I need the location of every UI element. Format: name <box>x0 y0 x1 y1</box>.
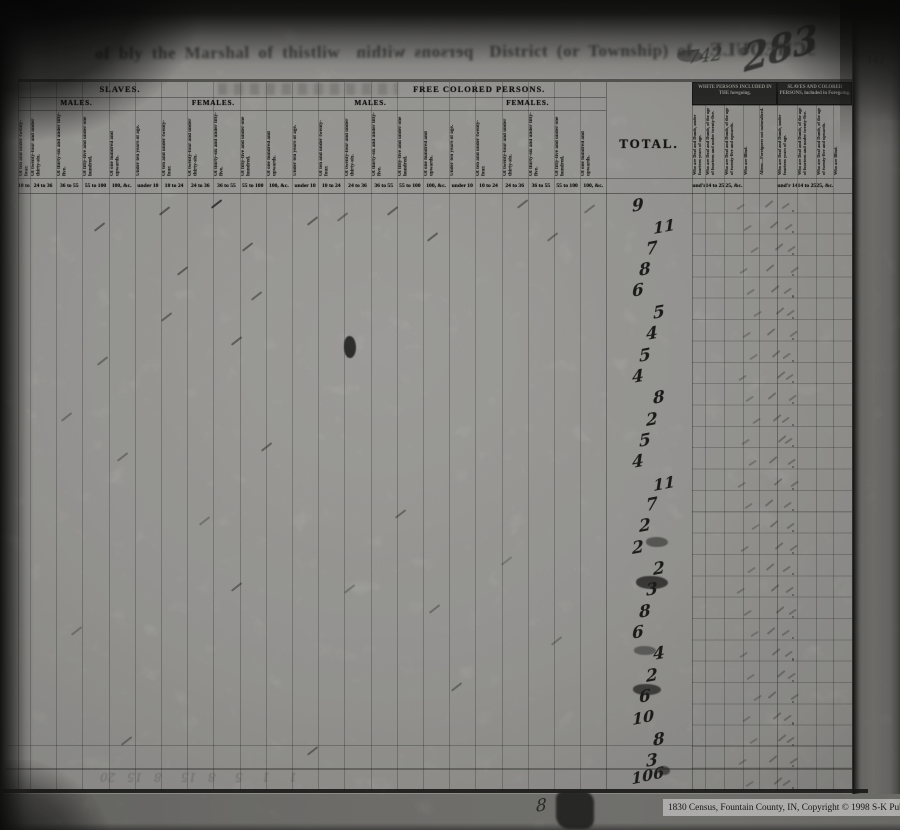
right-bleed-tick <box>782 352 790 358</box>
bottom-bleed-number: 5 <box>235 770 243 784</box>
bottom-bleed-number: 8 <box>208 770 216 784</box>
column-header-vertical-white-deaf: Who are Deaf and Dumb, of the age of twe… <box>725 106 742 177</box>
column-age-label-fc-males: 10 to 24 <box>318 179 344 193</box>
right-row-dot <box>792 637 794 639</box>
table-column-line <box>318 82 319 791</box>
table-column-line <box>371 82 372 791</box>
right-bleed-tick <box>750 631 758 637</box>
right-bleed-tick <box>778 734 787 742</box>
right-bleed-tick <box>786 309 794 315</box>
total-entry: 5 <box>653 302 665 324</box>
column-age-label-fc-females: 10 to 24 <box>475 179 501 193</box>
bleed-title-segment: SCHEDULE <box>709 39 816 62</box>
table-column-line <box>475 82 476 791</box>
right-bleed-tick <box>768 691 777 699</box>
column-age-label-white-deaf: 14 to 25 <box>705 179 724 193</box>
right-bleed-tick <box>736 588 744 594</box>
column-age-label-colored-deaf: 14 to 25 <box>797 179 816 193</box>
table-row-rule <box>692 105 852 106</box>
table-column-line <box>816 82 817 791</box>
column-header-vertical-white-deaf: Who are Deaf and Dumb, under fourteen ye… <box>693 106 704 177</box>
table-column-line <box>449 82 450 791</box>
right-bleed-tick <box>777 371 786 379</box>
handwritten-page-number: 283 <box>743 15 819 82</box>
right-row-dot <box>792 701 794 703</box>
column-header-vertical-fc-females: Of thirty-six and under fifty-five. <box>529 110 553 178</box>
tally-tick <box>307 746 318 755</box>
sex-header-0: MALES. <box>18 97 135 110</box>
right-bleed-tick <box>771 584 780 592</box>
column-header-vertical-slaves-males: Of one hundred and upwards. <box>110 110 134 178</box>
right-bleed-tick <box>743 609 751 615</box>
right-bleed-tick <box>737 481 745 487</box>
column-age-label-white-deaf: 25, &c. <box>724 179 743 193</box>
bottom-bleed-number: 1 <box>262 770 270 784</box>
right-bleed-tick <box>745 396 753 402</box>
right-bleed-tick <box>784 651 792 657</box>
right-bleed-tick <box>766 264 775 272</box>
right-bleed-tick <box>752 417 760 423</box>
right-bleed-tick <box>786 736 794 742</box>
column-age-label-fc-females: under 10 <box>449 179 475 193</box>
table-column-line <box>266 82 267 791</box>
right-bleed-tick <box>789 544 797 550</box>
table-column-line <box>240 82 241 791</box>
total-entry: 5 <box>639 430 651 452</box>
table-column-line <box>743 82 744 791</box>
vignette-right-top <box>840 0 900 150</box>
column-age-label-slaves-females: 10 to 24 <box>161 179 187 193</box>
table-column-line <box>724 82 725 791</box>
column-header-vertical-colored-deaf: Who are Deaf and Dumb, under fourteen ye… <box>778 106 796 177</box>
right-bleed-tick <box>753 310 761 316</box>
total-entry: 8 <box>653 729 665 751</box>
total-entry: 8 <box>653 387 665 409</box>
right-bleed-tick <box>749 737 757 743</box>
right-row-dot <box>792 466 794 468</box>
tally-tick <box>71 626 82 635</box>
right-bleed-tick <box>739 652 747 658</box>
right-row-dot <box>792 210 794 212</box>
total-entry: 8 <box>639 600 651 622</box>
total-entry: 3 <box>646 579 658 601</box>
right-row-dot <box>792 765 794 767</box>
grand-total: 106 <box>631 762 665 788</box>
right-bleed-tick <box>750 246 758 252</box>
column-age-label-slaves-males: 10 to 24 <box>18 179 30 193</box>
tally-tick <box>584 204 595 213</box>
section-header-white-included: WHITE PERSONS INCLUDED IN THE foregoing. <box>692 82 777 105</box>
right-bleed-tick <box>783 715 791 721</box>
right-bleed-tick <box>776 606 785 614</box>
total-entry: 7 <box>646 494 658 516</box>
right-row-dot <box>792 317 794 319</box>
ink-blot <box>633 684 661 695</box>
right-row-dot <box>792 360 794 362</box>
column-header-vertical-fc-males: Of fifty-five and under one hundred. <box>398 110 422 178</box>
sex-header-2: MALES. <box>292 97 449 110</box>
table-column-line <box>56 82 57 791</box>
right-bleed-tick <box>774 478 783 486</box>
right-bleed-tick <box>790 267 798 273</box>
right-bleed-tick <box>775 243 784 251</box>
table-column-line <box>30 82 31 791</box>
total-entry: 6 <box>632 622 644 644</box>
scanned-page: of bly the Marshal of thistliwpersons wi… <box>0 0 900 830</box>
table-column-line <box>692 82 693 791</box>
tally-tick <box>199 516 210 525</box>
column-header-vertical-slaves-females: Of one hundred and upwards. <box>267 110 291 178</box>
tally-tick <box>427 232 438 241</box>
table-column-line <box>554 82 555 791</box>
right-bleed-tick <box>746 673 754 679</box>
table-column-line <box>833 82 834 791</box>
table-column-line <box>187 82 188 791</box>
right-bleed-tick <box>775 542 784 550</box>
table-column-line <box>397 82 398 791</box>
right-bleed-tick <box>768 392 777 400</box>
right-bleed-tick <box>767 627 776 635</box>
right-bleed-tick <box>740 545 748 551</box>
column-age-label-fc-males: under 10 <box>292 179 318 193</box>
right-bleed-tick <box>786 523 794 529</box>
right-row-dot <box>792 488 794 490</box>
table-column-line <box>797 82 798 791</box>
scan-grain <box>0 0 900 830</box>
total-entry: 8 <box>639 259 651 281</box>
column-header-vertical-colored-deaf: Who are Deaf and Dumb, of the age of twe… <box>817 106 832 177</box>
right-bleed-tick <box>785 587 793 593</box>
column-age-label-fc-females: 100, &c. <box>580 179 606 193</box>
tally-tick <box>231 582 242 591</box>
table-column-line <box>528 82 529 791</box>
tally-tick <box>517 199 528 208</box>
column-age-label-slaves-females: 55 to 100 <box>240 179 266 193</box>
tally-tick <box>551 636 562 645</box>
ink-blot <box>634 646 656 655</box>
census-table: TOTAL. SLAVES.FREE COLORED PERSONS.MALES… <box>0 0 900 830</box>
bottom-bleed-number: 20 <box>100 770 116 785</box>
column-age-label-white-deaf: und'r 14 <box>692 179 705 193</box>
column-age-label-fc-females: 55 to 100 <box>554 179 580 193</box>
right-bleed-tick <box>784 437 792 443</box>
column-header-vertical-slaves-males: Of twenty-four and under thirty-six. <box>31 110 55 178</box>
right-bleed-tick <box>738 374 746 380</box>
table-row-rule <box>6 745 852 746</box>
right-bleed-tick <box>772 648 781 656</box>
handwritten-entries-layer: 106 911786545482541172223864261083201581… <box>0 0 900 830</box>
ink-blot <box>344 336 356 358</box>
tally-tick <box>251 291 262 300</box>
right-bleed-tick <box>770 221 779 229</box>
table-column-line <box>82 82 83 791</box>
bottom-bleed-number: 1 <box>289 770 297 784</box>
column-header-vertical-slaves-females: Of twenty-four and under thirty-six. <box>188 110 212 178</box>
right-bleed-tick <box>747 567 755 573</box>
table-column-line <box>344 82 345 791</box>
ink-blot <box>636 576 668 589</box>
table-column-line <box>852 82 853 791</box>
right-row-dot <box>792 445 794 447</box>
right-row-dot <box>792 658 794 660</box>
table-row-rule <box>18 97 606 98</box>
tally-tick <box>161 312 172 321</box>
right-row-dot <box>792 338 794 340</box>
handwritten-folio-number: 742 <box>688 44 723 69</box>
right-bleed-tick <box>781 203 789 209</box>
copyright-strip: 1830 Census, Fountain County, IN, Copyri… <box>663 799 900 816</box>
tally-tick <box>261 442 272 451</box>
total-entry: 2 <box>646 408 658 430</box>
table-column-line <box>213 82 214 791</box>
right-bleed-tick <box>783 288 791 294</box>
tally-tick <box>159 206 170 215</box>
column-header-vertical-white-deaf: Who are Deaf and Dumb, of the age of fou… <box>706 106 723 177</box>
section-header-slaves: SLAVES. <box>18 82 292 97</box>
right-bleed-tick <box>774 776 783 784</box>
total-entry: 5 <box>639 344 651 366</box>
total-entry: 2 <box>632 536 644 558</box>
total-entry: 4 <box>632 366 644 388</box>
sex-header-3: FEMALES. <box>449 97 606 110</box>
column-age-label-fc-males: 55 to 100 <box>397 179 423 193</box>
right-row-dot <box>792 787 794 789</box>
total-column-header: TOTAL. <box>606 110 692 178</box>
total-entry: 9 <box>632 195 644 217</box>
copyright-text: 1830 Census, Fountain County, IN, Copyri… <box>663 803 900 813</box>
right-row-dot <box>792 552 794 554</box>
table-row-rule <box>6 768 852 770</box>
right-row-dot <box>792 509 794 511</box>
right-bleed-tick <box>739 268 747 274</box>
column-age-label-slaves-males: 55 to 100 <box>82 179 108 193</box>
total-entry: 4 <box>632 451 644 473</box>
total-entry: 10 <box>632 706 655 729</box>
column-age-label-fc-males: 100, &c. <box>423 179 449 193</box>
right-bleed-tick <box>787 459 795 465</box>
tally-tick <box>395 509 406 518</box>
paper <box>0 0 900 830</box>
column-header-vertical-slaves-females: Of thirty-six and under fifty-five. <box>214 110 238 178</box>
ink-blot <box>677 50 703 62</box>
column-age-label-colored-deaf: und'r 14 <box>777 179 797 193</box>
tally-tick <box>97 356 108 365</box>
tally-tick <box>177 266 188 275</box>
right-bleed-tick <box>788 608 796 614</box>
column-header-vertical-fc-females: Of fifty-five and under one hundred. <box>555 110 579 178</box>
table-row-rule <box>18 193 852 194</box>
tally-tick <box>337 212 348 221</box>
column-header-vertical-slaves-males: Of fifty-five and under one hundred. <box>83 110 107 178</box>
column-age-label-slaves-females: 36 to 55 <box>213 179 239 193</box>
column-age-label-fc-females: 36 to 55 <box>528 179 554 193</box>
tally-tick <box>344 584 355 593</box>
column-header-vertical-slaves-females: Of fifty-five and under one hundred. <box>241 110 265 178</box>
vignette-corner-tr <box>760 0 900 120</box>
right-bleed-tick <box>772 349 781 357</box>
column-header-vertical-slaves-females: Of ten and under twenty-four. <box>162 110 186 178</box>
right-bleed-tick <box>790 480 798 486</box>
right-bleed-tick <box>746 289 754 295</box>
right-bleed-tick <box>787 245 795 251</box>
column-header-vertical-colored-deaf: Who are Deaf and Dumb, of the age of fou… <box>798 106 815 177</box>
page-right-margin <box>852 0 900 830</box>
column-header-vertical-white-deaf: Aliens—Foreigners not naturalized. <box>760 106 776 177</box>
total-entry: 4 <box>653 643 665 665</box>
right-bleed-tick <box>766 563 775 571</box>
right-row-dot <box>792 594 794 596</box>
column-header-vertical-fc-males: Of ten and under twenty-four. <box>319 110 343 178</box>
tally-tick <box>547 232 558 241</box>
total-entry: 2 <box>639 515 651 537</box>
column-header-vertical-fc-females: Of one hundred and upwards. <box>581 110 605 178</box>
right-bleed-tick <box>784 224 792 230</box>
table-column-line <box>423 82 424 791</box>
bottom-bleed-number: 8 <box>154 770 162 784</box>
tally-tick <box>242 242 253 251</box>
column-header-vertical-fc-males: Of twenty-four and under thirty-six. <box>345 110 369 178</box>
table-column-line <box>606 82 607 791</box>
tally-tick <box>501 556 512 565</box>
right-row-dot <box>792 680 794 682</box>
column-header-vertical-fc-females: Of twenty-four and under thirty-six. <box>503 110 527 178</box>
right-bleed-tick <box>745 780 753 786</box>
column-header-vertical-slaves-males: Of thirty-six and under fifty-five. <box>57 110 81 178</box>
right-bleed-tick <box>789 758 797 764</box>
table-column-line <box>777 82 778 791</box>
column-age-label-fc-males: 24 to 36 <box>344 179 370 193</box>
column-header-vertical-fc-females: Under ten years of age. <box>450 110 474 178</box>
section-header-colored-included: SLAVES AND COLORED PERSONS, included in … <box>777 82 852 105</box>
column-age-label-fc-females: 24 to 36 <box>502 179 528 193</box>
right-row-dot <box>792 381 794 383</box>
right-row-dot <box>792 253 794 255</box>
table-column-line <box>292 82 293 791</box>
vignette-corner-tl <box>0 0 200 140</box>
right-row-dot <box>792 616 794 618</box>
bottom-bleed-number: 15 <box>127 770 143 785</box>
right-bleed-tick <box>765 200 774 208</box>
right-bleed-tick <box>765 499 774 507</box>
column-header-vertical-white-deaf: Who are Blind. <box>744 106 758 177</box>
tally-tick <box>117 452 128 461</box>
column-age-label-colored-deaf: 25, &c. <box>816 179 833 193</box>
bleed-through-title: of bly the Marshal of thistliwpersons wi… <box>95 39 815 73</box>
tally-tick <box>231 336 242 345</box>
right-bleed-tick <box>773 413 782 421</box>
vignette-left <box>0 0 34 830</box>
tally-tick <box>451 682 462 691</box>
right-bleed-tick <box>738 759 746 765</box>
tally-tick <box>387 206 398 215</box>
total-entry: 11 <box>653 215 676 238</box>
column-age-label-slaves-males: 24 to 36 <box>30 179 56 193</box>
right-row-dot <box>792 573 794 575</box>
total-entry: 3 <box>646 750 658 772</box>
table-column-line <box>109 82 110 791</box>
right-bleed-tick <box>781 630 789 636</box>
total-entry: 4 <box>646 323 658 345</box>
right-bleed-tick <box>769 755 778 763</box>
tally-tick <box>429 604 440 613</box>
column-header-vertical-fc-males: Under ten years of age. <box>293 110 317 178</box>
page-fold-line <box>853 0 860 830</box>
right-row-dot <box>792 231 794 233</box>
tally-tick <box>307 216 318 225</box>
right-row-dot <box>792 744 794 746</box>
right-bleed-tick <box>749 353 757 359</box>
right-bleed-tick <box>776 307 785 315</box>
right-bleed-tick <box>787 672 795 678</box>
right-bleed-tick <box>753 695 761 701</box>
ink-blot <box>739 47 749 55</box>
right-bleed-tick <box>782 779 790 785</box>
bleed-title-segment: District (or Township) of <box>489 41 692 62</box>
right-bleed-tick <box>743 225 751 231</box>
total-entry: 6 <box>639 686 651 708</box>
right-row-dot <box>792 274 794 276</box>
right-row-dot <box>792 295 794 297</box>
right-bleed-tick <box>771 285 780 293</box>
right-bleed-tick <box>782 566 790 572</box>
tally-tick <box>121 736 132 745</box>
table-column-line <box>161 82 162 791</box>
right-bleed-tick <box>741 439 749 445</box>
right-bleed-tick <box>785 373 793 379</box>
column-age-label-slaves-females: 100, &c. <box>266 179 292 193</box>
sex-header-1: FEMALES. <box>135 97 292 110</box>
right-bleed-tick <box>748 460 756 466</box>
total-entry: 2 <box>653 558 665 580</box>
column-age-label-slaves-females: 24 to 36 <box>187 179 213 193</box>
right-bleed-tick <box>777 670 786 678</box>
table-column-line <box>18 82 19 791</box>
printed-page-stamp: 142 <box>867 55 885 66</box>
column-header-vertical-slaves-females: Under ten years of age. <box>136 110 160 178</box>
right-bleed-tick <box>769 456 778 464</box>
ink-blot <box>646 537 668 547</box>
ink-blob <box>556 791 594 829</box>
table-row-rule <box>18 178 852 179</box>
right-bleed-tick <box>788 395 796 401</box>
right-bleed-tick <box>778 435 787 443</box>
column-age-label-slaves-males: 100, &c. <box>109 179 135 193</box>
right-bleed-tick <box>744 503 752 509</box>
tally-tick <box>211 199 222 208</box>
table-column-line <box>705 82 706 791</box>
table-bottom-rule <box>2 789 868 793</box>
right-row-dot <box>792 722 794 724</box>
column-age-label-slaves-females: under 10 <box>135 179 161 193</box>
section-header-free-colored: FREE COLORED PERSONS. <box>292 82 606 97</box>
table-row-rule <box>18 110 606 111</box>
table-column-line <box>135 82 136 791</box>
right-bleed-tick <box>790 694 798 700</box>
vignette-corner-bl <box>0 760 110 830</box>
total-entry: 2 <box>646 664 658 686</box>
table-column-line <box>580 82 581 791</box>
ink-blot <box>658 766 670 775</box>
column-header-vertical-slaves-males: Of ten and under twenty-four. <box>19 110 29 178</box>
bleed-title-segment: persons within <box>356 42 473 63</box>
right-bleed-tick <box>767 328 776 336</box>
tally-tick <box>61 412 72 421</box>
right-bleed-tick <box>789 331 797 337</box>
right-section-row-lines <box>692 192 852 790</box>
right-bleed-tick <box>742 332 750 338</box>
right-bleed-tick <box>742 716 750 722</box>
scan-bottom-strip <box>0 794 900 830</box>
